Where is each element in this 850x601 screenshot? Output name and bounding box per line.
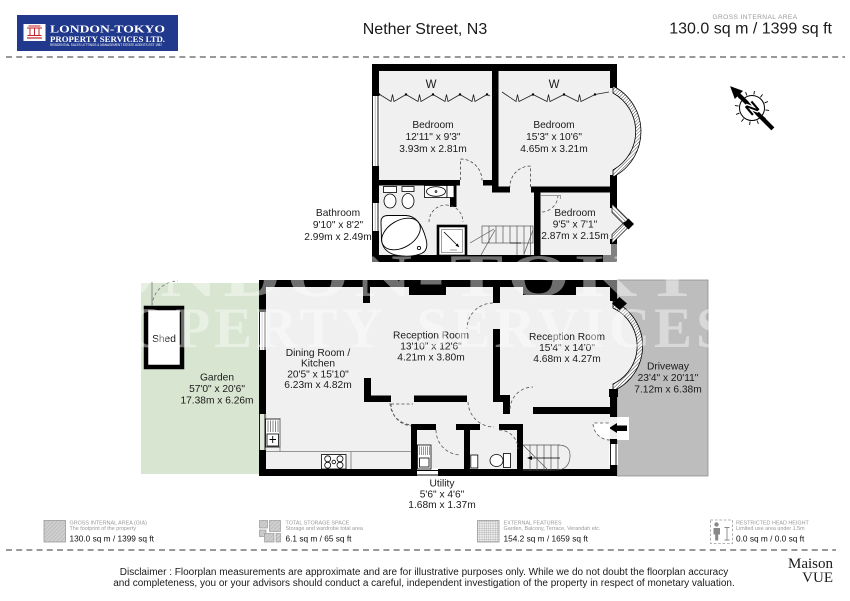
svg-text:17.38m x 6.26m: 17.38m x 6.26m (180, 396, 253, 407)
svg-text:RESIDENTIAL SALES LETTINGS & M: RESIDENTIAL SALES LETTINGS & MANAGEMENT … (50, 43, 162, 47)
svg-text:23'4" x 20'11": 23'4" x 20'11" (638, 373, 699, 384)
svg-text:15'3" x 10'6": 15'3" x 10'6" (526, 132, 582, 143)
svg-text:Garden: Garden (200, 373, 234, 384)
svg-text:PROPERTY SERVICES LTD: PROPERTY SERVICES LTD (43, 297, 850, 360)
svg-text:Bedroom: Bedroom (412, 120, 453, 131)
svg-text:6.23m x 4.82m: 6.23m x 4.82m (284, 380, 351, 391)
svg-text:Storage and wardrobe total are: Storage and wardrobe total area (286, 526, 363, 532)
svg-text:Nether Street, N3: Nether Street, N3 (363, 21, 488, 38)
svg-text:154.2 sq m / 1659 sq ft: 154.2 sq m / 1659 sq ft (504, 534, 589, 544)
svg-text:5'6" x 4'6": 5'6" x 4'6" (420, 490, 465, 501)
svg-text:6.1 sq m / 65 sq ft: 6.1 sq m / 65 sq ft (286, 534, 353, 544)
svg-text:Utility: Utility (430, 479, 456, 490)
svg-text:Disclaimer : Floorplan measure: Disclaimer : Floorplan measurements are … (120, 567, 728, 578)
svg-text:4.65m x 3.21m: 4.65m x 3.21m (520, 144, 587, 155)
svg-text:1.68m x 1.37m: 1.68m x 1.37m (408, 500, 475, 511)
svg-text:Bathroom: Bathroom (316, 208, 360, 219)
svg-text:Garden, Balcony, Terrace, Vera: Garden, Balcony, Terrace, Verandah etc. (504, 526, 601, 532)
svg-text:12'11" x 9'3": 12'11" x 9'3" (405, 132, 460, 143)
svg-text:7.12m x 6.38m: 7.12m x 6.38m (634, 385, 701, 396)
svg-text:2.87m x 2.15m: 2.87m x 2.15m (541, 231, 608, 242)
svg-text:57'0" x 20'6": 57'0" x 20'6" (189, 384, 245, 395)
svg-text:130.0 sq m / 1399 sq ft: 130.0 sq m / 1399 sq ft (70, 534, 155, 544)
svg-text:3.93m x 2.81m: 3.93m x 2.81m (399, 144, 466, 155)
svg-text:VUE: VUE (802, 570, 833, 586)
svg-text:W: W (426, 79, 437, 91)
svg-text:130.0 sq m / 1399 sq ft: 130.0 sq m / 1399 sq ft (669, 21, 832, 38)
svg-text:Kitchen: Kitchen (301, 359, 335, 370)
svg-text:0.0 sq m / 0.0 sq ft: 0.0 sq m / 0.0 sq ft (736, 534, 805, 544)
svg-text:9'10" x 8'2": 9'10" x 8'2" (313, 220, 364, 231)
svg-text:2.99m x 2.49m: 2.99m x 2.49m (304, 232, 371, 243)
svg-text:and completeness, you or your: and completeness, you or your advisors s… (113, 578, 734, 589)
svg-text:20'5" x 15'10": 20'5" x 15'10" (287, 370, 349, 381)
svg-text:9'5" x 7'1": 9'5" x 7'1" (553, 220, 598, 231)
svg-text:Bedroom: Bedroom (554, 208, 595, 219)
svg-text:The footprint of the property: The footprint of the property (70, 526, 137, 532)
svg-text:Driveway: Driveway (647, 362, 690, 373)
svg-text:LONDON-TOKYO: LONDON-TOKYO (50, 24, 166, 36)
svg-text:Limited use area under 1.5m: Limited use area under 1.5m (736, 526, 805, 532)
svg-text:Bedroom: Bedroom (533, 120, 574, 131)
svg-text:W: W (549, 79, 560, 91)
